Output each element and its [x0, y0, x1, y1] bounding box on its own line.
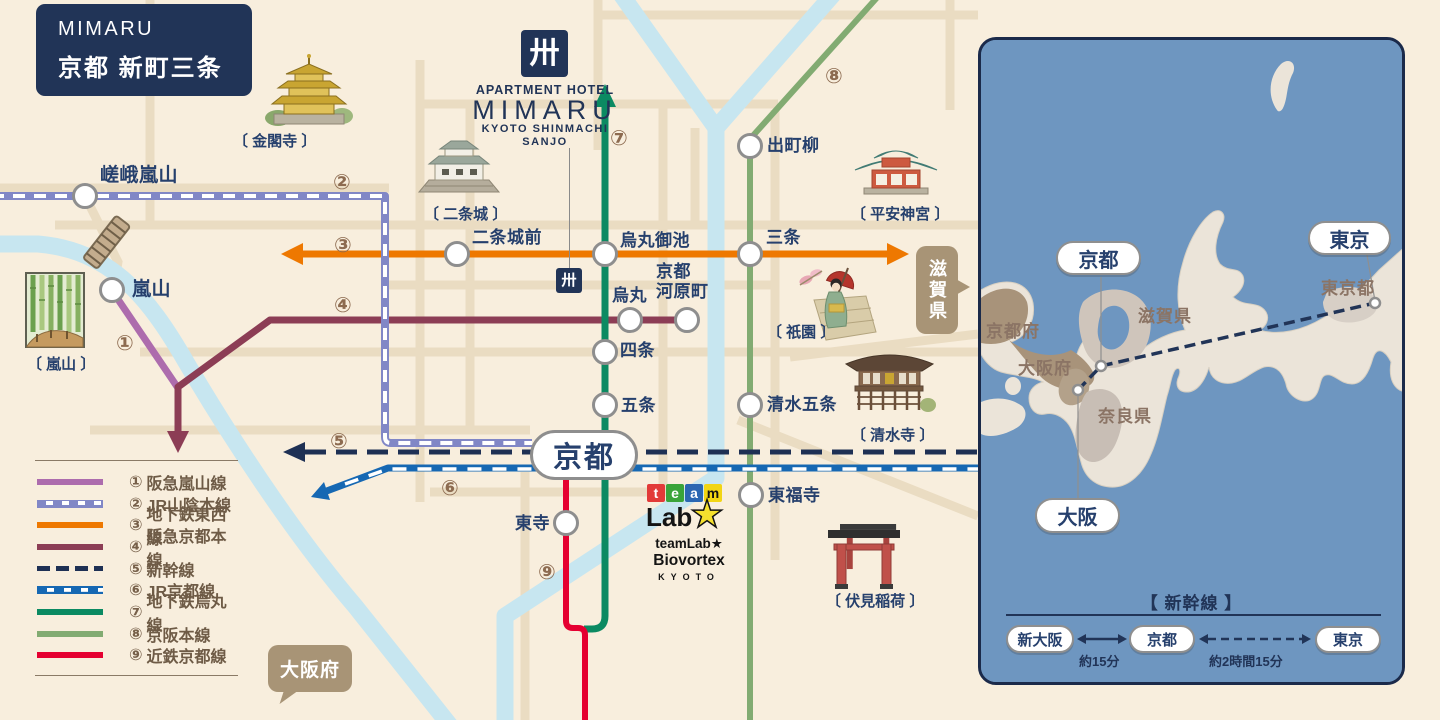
osaka-direction-label: 大阪府 — [280, 655, 340, 682]
region-label-kyoto-fu: 京都府 — [986, 317, 1040, 342]
region-label-shiga: 滋賀県 — [1138, 302, 1192, 327]
landmark-label-kiyomizudera: 〔 清水寺 〕 — [851, 424, 934, 445]
property-name: 京都 新町三条 — [58, 48, 252, 83]
hotel-brand: MIMARU — [460, 95, 630, 126]
city-pill-tokyo: 東京 — [1308, 221, 1391, 255]
line-5-arrow — [283, 442, 305, 462]
station-dot-kiyomizu-gojo — [737, 392, 763, 418]
shiga-direction-bubble: 滋賀県 — [916, 246, 958, 334]
kinkakuji-icon — [262, 52, 357, 130]
shiga-bubble-tail — [954, 278, 970, 296]
region-label-tokyo-to: 東京都 — [1321, 274, 1375, 299]
diagram-pill-kyoto: 京都 — [1129, 625, 1195, 653]
badge-line-2: ② — [333, 170, 351, 195]
legend-swatch-5 — [37, 566, 103, 571]
station-dot-sanjo — [737, 241, 763, 267]
line-legend: ①阪急嵐山線 ②JR山陰本線 ③地下鉄東西線 ④阪急京都本線 ⑤新幹線 ⑥JR京… — [35, 460, 238, 676]
station-label-kyoto-kawaramachi: 京都 河原町 — [656, 262, 709, 301]
teamlab-tile-t: t — [647, 484, 665, 502]
duration-osaka-kyoto: 約15分 — [1079, 651, 1119, 670]
station-label-kiyomizu-gojo: 清水五条 — [767, 395, 837, 415]
landmark-label-fushimi-inari: 〔 伏見稲荷 〕 — [826, 590, 924, 611]
station-label-toji: 東寺 — [500, 514, 550, 534]
station-label-shijo: 四条 — [620, 341, 655, 361]
awaji-island — [1005, 377, 1021, 395]
heian-jingu-icon — [850, 136, 942, 202]
badge-line-3: ③ — [334, 233, 352, 258]
teamlab-lab-text: Lab — [646, 502, 692, 533]
legend-row-8: ⑧京阪本線 — [37, 623, 238, 645]
kiyomizudera-icon — [842, 342, 937, 414]
legend-row-7: ⑦地下鉄烏丸線 — [37, 601, 238, 623]
arashiyama-bamboo-icon — [25, 272, 85, 348]
hotel-location-line2: SANJO — [460, 136, 630, 148]
station-label-sanj o: 三条 — [766, 228, 801, 248]
station-label-tofukuji: 東福寺 — [768, 486, 821, 506]
osaka-direction-bubble: 大阪府 — [268, 645, 352, 692]
duration-kyoto-tokyo: 約2時間15分 — [1209, 651, 1283, 670]
station-label-saga-arashiyama: 嵯峨嵐山 — [100, 165, 178, 187]
station-label-karasuma: 烏丸 — [612, 286, 647, 306]
shinkansen-diagram-divider — [1006, 614, 1381, 616]
station-dot-arashiyama — [99, 277, 125, 303]
station-label-gojo: 五条 — [621, 396, 656, 416]
landmark-label-kinkakuji: 〔 金閣寺 〕 — [233, 130, 316, 151]
station-label-karasuma-oike: 烏丸御池 — [620, 231, 690, 251]
region-label-nara: 奈良県 — [1098, 402, 1152, 427]
teamlab-tile-e: e — [666, 484, 684, 502]
station-dot-tofukuji — [738, 482, 764, 508]
station-dot-karasuma-oike — [592, 241, 618, 267]
teamlab-line1: teamLab★ — [644, 536, 734, 552]
hotel-location-line1: KYOTO SHINMACHI — [460, 123, 630, 135]
mimaru-logo-icon: 卅 — [521, 30, 568, 77]
station-label-demachiyanagi: 出町柳 — [767, 136, 820, 156]
legend-swatch-2 — [37, 500, 103, 508]
badge-line-8: ⑧ — [825, 64, 843, 89]
station-dot-gojo — [592, 392, 618, 418]
kyoto-station-label: 京都 — [553, 434, 615, 476]
region-inset-map: 京都府 滋賀県 大阪府 奈良県 東京都 京都 東京 大阪 【 新幹線 】 新大阪… — [978, 37, 1405, 685]
legend-swatch-9 — [37, 652, 103, 658]
line-3-arrow-left — [281, 243, 303, 265]
badge-line-5: ⑤ — [330, 429, 348, 454]
hotel-pointer-line — [569, 148, 570, 270]
city-pill-kyoto: 京都 — [1056, 241, 1141, 275]
station-dot-saga-arashiyama — [72, 183, 98, 209]
fushimi-inari-torii-icon — [828, 522, 906, 590]
brand-name: MIMARU — [58, 18, 252, 41]
region-label-osaka-fu: 大阪府 — [1018, 354, 1072, 379]
teamlab-line2: Biovortex — [644, 552, 734, 570]
shiga-direction-label: 滋賀県 — [924, 259, 950, 322]
legend-row-1: ①阪急嵐山線 — [37, 471, 238, 493]
legend-swatch-6 — [37, 586, 103, 594]
property-title-card: MIMARU 京都 新町三条 — [36, 4, 252, 96]
teamlab-star-icon: ★ — [690, 492, 724, 537]
legend-row-4: ④阪急京都本線 — [37, 536, 238, 558]
transit-map-poster: 京都 嵯峨嵐山 嵐山 二条城前 烏丸御池 三条 出町柳 烏丸 京都 河原町 四条… — [0, 0, 1440, 720]
legend-swatch-3 — [37, 522, 103, 528]
badge-line-1: ① — [116, 331, 134, 356]
landmark-label-arashiyama: 〔 嵐山 〕 — [27, 353, 95, 374]
badge-line-6: ⑥ — [441, 476, 459, 501]
line-4-hankyu-kyoto — [178, 320, 687, 434]
legend-swatch-1 — [37, 479, 103, 485]
kyoto-station-bubble: 京都 — [530, 430, 638, 480]
legend-swatch-7 — [37, 609, 103, 615]
station-label-arashiyama: 嵐山 — [132, 279, 171, 301]
shinkansen-diagram-heading: 【 新幹線 】 — [981, 589, 1402, 614]
landmark-label-nijojo: 〔 二条城 〕 — [424, 203, 507, 224]
badge-line-9: ⑨ — [538, 560, 556, 585]
teamlab-line3: KYOTO — [644, 572, 734, 582]
station-dot-nijojo-mae — [444, 241, 470, 267]
station-label-nijojo-mae: 二条城前 — [472, 228, 542, 248]
legend-swatch-8 — [37, 631, 103, 637]
togetsukyo-bridge-icon — [70, 210, 142, 276]
legend-swatch-4 — [37, 544, 103, 550]
hotel-map-marker-icon: 卅 — [556, 268, 582, 293]
line-4-arrow — [167, 431, 189, 453]
teamlab-logo: t e a m Lab ★ teamLab★ Biovortex KYOTO — [644, 484, 734, 582]
station-dot-toji — [553, 510, 579, 536]
diagram-pill-tokyo: 東京 — [1315, 626, 1381, 653]
station-dot-kyoto-kawaramachi — [674, 307, 700, 333]
diagram-pill-shin-osaka: 新大阪 — [1006, 625, 1074, 653]
legend-divider-bottom — [35, 675, 238, 676]
legend-row-9: ⑨近鉄京都線 — [37, 645, 238, 667]
station-dot-karasuma — [617, 307, 643, 333]
landmark-label-gion: 〔 祇園 〕 — [767, 321, 835, 342]
landmark-label-heian-jingu: 〔 平安神宮 〕 — [851, 203, 949, 224]
badge-line-4: ④ — [334, 293, 352, 318]
city-pill-osaka: 大阪 — [1035, 498, 1120, 533]
station-dot-demachiyanagi — [737, 133, 763, 159]
station-dot-shijo — [592, 339, 618, 365]
